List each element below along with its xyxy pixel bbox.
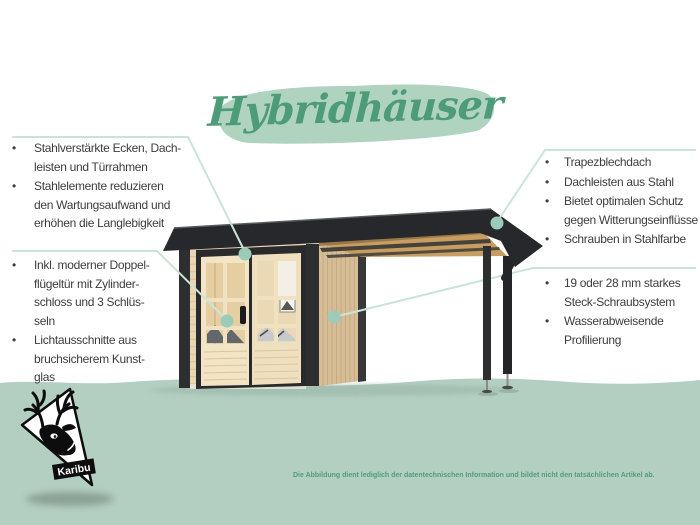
post-foot-shadow [499,389,519,393]
corner-trim-right [306,244,319,386]
bullet-text: 19 oder 28 mm starkes Steck-Schraubsyste… [564,274,680,311]
bullet-text: Dachleisten aus Stahl [564,173,674,192]
bullet-text: Stahlverstärkte Ecken, Dach- leisten und… [34,139,181,176]
infographic-page: Hybridhäuser • Stahlverstärkte Ecken, Da… [0,0,700,525]
bullet-icon: • [8,177,34,196]
note-top-left: • Stahlverstärkte Ecken, Dach- leisten u… [8,139,213,234]
note-bottom-left: • Inkl. moderner Doppel- flügeltür mit Z… [8,256,213,388]
bullet-item: • Trapezblechdach [543,153,700,172]
bullet-icon: • [8,256,34,275]
bullet-text: Trapezblechdach [564,153,651,172]
bullet-icon: • [543,153,564,172]
bullet-text: Lichtausschnitte aus bruchsicherem Kunst… [34,331,145,387]
callout-dot-door-handle [221,315,234,328]
note-bottom-right: • 19 oder 28 mm starkes Steck-Schraubsys… [543,274,700,350]
bullet-item: • Dachleisten aus Stahl [543,173,700,192]
bullet-icon: • [8,139,34,158]
callout-dot-wall [328,311,341,324]
callout-dot-roof [491,217,504,230]
bullet-icon: • [543,274,564,293]
bullet-icon: • [8,331,34,350]
canopy-post-front [502,256,515,389]
door-handle [240,306,246,324]
logo-shadow [26,492,114,506]
disclaimer-text: Die Abbildung dient lediglich der datent… [293,472,697,479]
bullet-text: Wasserabweisende Profilierung [564,312,663,349]
bullet-item: • Lichtausschnitte aus bruchsicherem Kun… [8,331,213,387]
bullet-icon: • [543,192,564,211]
bullet-icon: • [543,230,564,249]
bullet-item: • Inkl. moderner Doppel- flügeltür mit Z… [8,256,213,330]
canopy-post-rear [482,246,492,393]
bullet-item: • Stahlverstärkte Ecken, Dach- leisten u… [8,139,213,176]
bullet-text: Schrauben in Stahlfarbe [564,230,686,249]
bullet-text: Stahlelemente reduzieren den Wartungsauf… [34,177,170,233]
callout-dot-door-top [239,248,252,261]
bullet-item: • Schrauben in Stahlfarbe [543,230,700,249]
bullet-text: Bietet optimalen Schutz gegen Witterungs… [564,192,698,229]
bullet-item: • 19 oder 28 mm starkes Steck-Schraubsys… [543,274,700,311]
bullet-text: Inkl. moderner Doppel- flügeltür mit Zyl… [34,256,149,330]
karibu-logo: Karibu [12,383,107,493]
bullet-icon: • [543,173,564,192]
bullet-icon: • [543,312,564,331]
page-title-block: Hybridhäuser [205,80,505,150]
note-top-right: • Trapezblechdach • Dachleisten aus Stah… [543,153,700,250]
bullet-item: • Stahlelemente reduzieren den Wartungsa… [8,177,213,233]
bullet-item: • Bietet optimalen Schutz gegen Witterun… [543,192,700,229]
bullet-item: • Wasserabweisende Profilierung [543,312,700,349]
page-title: Hybridhäuser [204,81,506,136]
